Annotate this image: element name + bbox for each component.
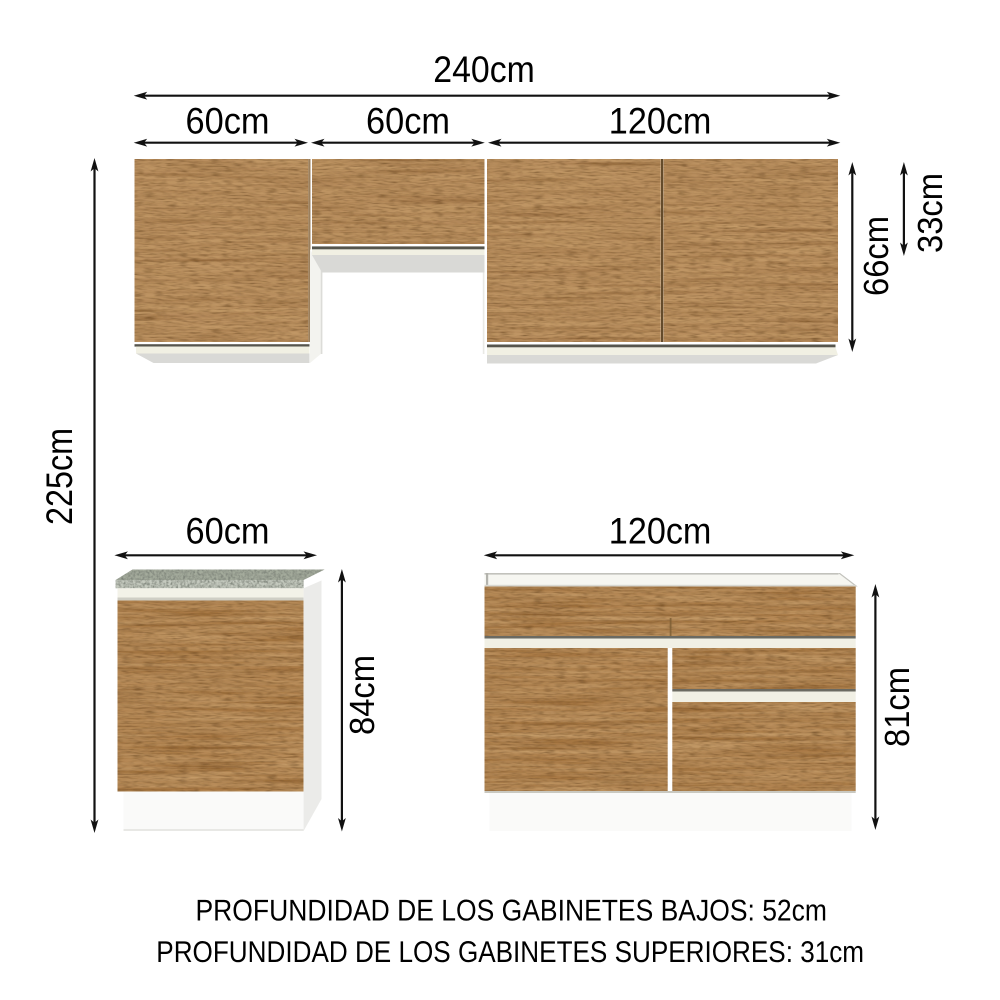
- svg-text:33cm: 33cm: [911, 173, 950, 253]
- svg-text:81cm: 81cm: [878, 667, 917, 747]
- svg-text:PROFUNDIDAD DE LOS GABINETES S: PROFUNDIDAD DE LOS GABINETES SUPERIORES:…: [156, 936, 864, 969]
- svg-text:66cm: 66cm: [857, 216, 896, 296]
- svg-text:120cm: 120cm: [609, 101, 712, 142]
- svg-text:225cm: 225cm: [39, 428, 80, 525]
- svg-text:60cm: 60cm: [186, 511, 270, 552]
- svg-text:240cm: 240cm: [433, 49, 535, 90]
- svg-text:60cm: 60cm: [366, 101, 450, 142]
- svg-text:84cm: 84cm: [343, 655, 382, 735]
- svg-text:120cm: 120cm: [609, 511, 712, 552]
- svg-text:60cm: 60cm: [186, 101, 270, 142]
- svg-text:PROFUNDIDAD DE LOS GABINETES B: PROFUNDIDAD DE LOS GABINETES BAJOS: 52cm: [196, 895, 827, 928]
